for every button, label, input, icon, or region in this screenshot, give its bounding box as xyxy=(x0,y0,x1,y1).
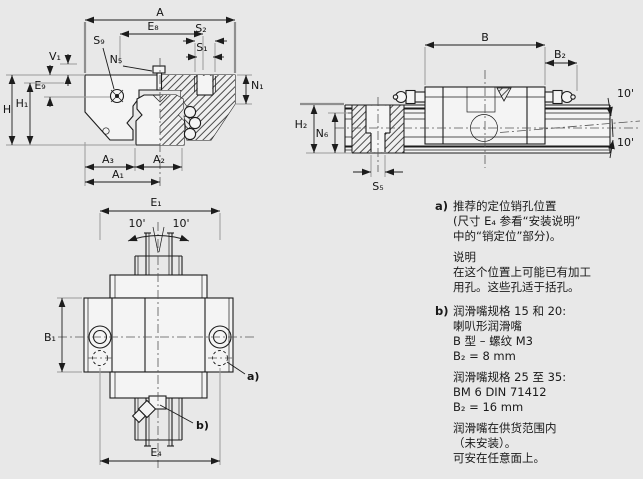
note-line: (尺寸 E₄ 参看“安装说明” xyxy=(453,214,591,229)
note-line: B 型 – 螺纹 M3 xyxy=(453,334,566,349)
ball xyxy=(189,117,200,128)
angle-label-left: 10' xyxy=(128,217,145,230)
footnote-b-marker: b) xyxy=(435,304,449,466)
dim-label-S9: S₉ xyxy=(93,34,104,47)
footnote-a: a) 推荐的定位销孔位置 (尺寸 E₄ 参看“安装说明” 中的“销定位”部分)。… xyxy=(435,199,643,295)
cross-section-view: A E₈ S₉ N₅ S₂ S₁ N₁ V₁ E₉ xyxy=(3,6,264,188)
note-line: BM 6 DIN 71412 xyxy=(453,385,566,400)
dim-label-H1: H₁ xyxy=(16,97,29,110)
dim-label-H2: H₂ xyxy=(295,118,308,131)
footnote-a-marker: a) xyxy=(435,199,449,295)
dim-label-A3: A₃ xyxy=(102,153,114,166)
dim-label-E9: E₉ xyxy=(34,79,45,92)
note-line: 推荐的定位销孔位置 xyxy=(453,199,591,214)
dim-label-A1: A₁ xyxy=(112,168,124,181)
dim-label-S2: S₂ xyxy=(195,22,206,35)
end-cap-top xyxy=(110,275,207,298)
dim-label-N5: N₅ xyxy=(110,53,123,66)
dim-label-B: B xyxy=(481,31,489,44)
angle-arc xyxy=(128,236,189,242)
callout-b-label: b) xyxy=(196,419,209,432)
dim-label-E1: E₁ xyxy=(150,196,161,209)
note-line: 说明 xyxy=(453,250,591,265)
note-line: 润滑嘴在供货范围内 xyxy=(453,421,566,436)
note-line: 用孔。这些孔适于括孔。 xyxy=(453,280,591,295)
ball xyxy=(184,106,195,117)
plan-view: E₁ 10' 10' B₁ E₄ a) b) xyxy=(44,196,259,468)
note-line: 润滑嘴规格 15 和 20: xyxy=(453,304,566,319)
callout-a-label: a) xyxy=(247,370,259,383)
dim-label-V1: V₁ xyxy=(49,50,61,63)
dim-label-H: H xyxy=(3,103,11,116)
rail-section-block xyxy=(352,97,404,172)
end-cap-bottom xyxy=(110,372,207,398)
side-view: 10' 10' B B₂ H₂ N₆ S₅ xyxy=(295,31,640,193)
grease-nipple-left xyxy=(393,91,425,104)
angle-label-top: 10' xyxy=(617,87,634,100)
note-line: 在这个位置上可能已有加工 xyxy=(453,265,591,280)
note-line: 中的“销定位”部分)。 xyxy=(453,229,591,244)
dim-label-B2: B₂ xyxy=(554,48,566,61)
note-line: （未安装）。 xyxy=(453,436,566,451)
technical-drawing-page: A E₈ S₉ N₅ S₂ S₁ N₁ V₁ E₉ xyxy=(0,0,643,479)
dim-label-S5: S₅ xyxy=(372,180,383,193)
dim-label-B1: B₁ xyxy=(44,331,56,344)
dim-label-A: A xyxy=(156,6,164,19)
note-line: 润滑嘴规格 25 至 35: xyxy=(453,370,566,385)
dim-label-S1: S₁ xyxy=(196,41,207,54)
dim-label-N6: N₆ xyxy=(316,127,329,140)
dim-label-N1: N₁ xyxy=(251,79,264,92)
angle-label-bottom: 10' xyxy=(617,136,634,149)
grease-port-symbol xyxy=(111,90,124,103)
note-line: 喇叭形润滑嘴 xyxy=(453,319,566,334)
grease-nipple-right xyxy=(545,91,575,104)
dim-label-A2: A₂ xyxy=(153,153,165,166)
rail-plan-top xyxy=(135,233,182,277)
dim-label-E4: E₄ xyxy=(150,446,162,459)
callout-b-leader xyxy=(160,405,193,423)
note-line: B₂ = 8 mm xyxy=(453,349,566,364)
note-line: 可安在任意面上。 xyxy=(453,451,566,466)
note-line: B₂ = 16 mm xyxy=(453,400,566,415)
angle-label-right: 10' xyxy=(172,217,189,230)
dim-label-E8: E₈ xyxy=(147,20,159,33)
footnotes-panel: a) 推荐的定位销孔位置 (尺寸 E₄ 参看“安装说明” 中的“销定位”部分)。… xyxy=(435,199,643,466)
ball xyxy=(184,128,195,139)
footnote-b: b) 润滑嘴规格 15 和 20: 喇叭形润滑嘴 B 型 – 螺纹 M3 B₂ … xyxy=(435,304,643,466)
